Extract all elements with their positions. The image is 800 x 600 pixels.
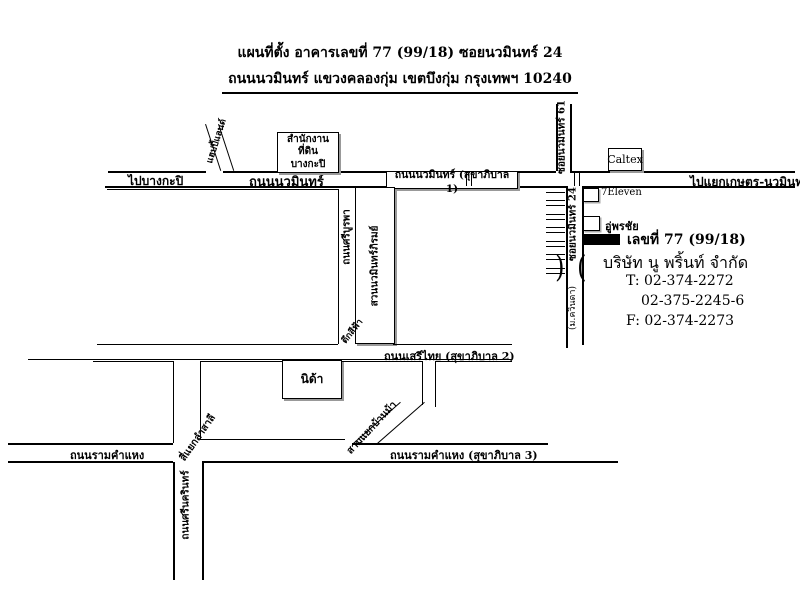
nawamin-sukhaphiban1-label-box: ถนนนวมินทร์ (สุขาภิบาล 1) <box>386 171 518 189</box>
sriburapha-road-label: ถนนศรีบูรพา <box>340 209 355 264</box>
srinakarin-road-label: ถนนศรีนครินทร์ <box>179 470 194 539</box>
nawamin-phirom-park-label: สวนนวมินทร์ภิรมย์ <box>368 225 383 306</box>
land-office-label-line1: สำนักงานที่ดิน <box>278 134 338 159</box>
soi-nawamin61-label: ซอยนวมินทร์ 61 <box>555 100 570 174</box>
srinakarin-road-line-right <box>202 462 204 580</box>
company-tel1-label: T: 02-374-2272 <box>626 273 734 289</box>
side-street-mark <box>546 241 565 247</box>
lower-middle-block-right-edge <box>422 361 423 405</box>
serithai-road-label: ถนนเสรีไทย (สุขาภิบาล 2) <box>384 347 515 365</box>
lamsali-junction-label: สี่แยกลำสาลี <box>176 412 219 465</box>
side-street-mark <box>546 227 565 233</box>
company-tel2-label: 02-375-2245-6 <box>641 293 744 309</box>
road-crossing-mark <box>579 172 580 186</box>
road-crossing-mark <box>574 172 575 186</box>
lower-left-block-right-edge <box>173 361 174 443</box>
ramkhamhaeng3-road-label: ถนนรามคำแหง (สุขาภิบาล 3) <box>390 446 538 464</box>
company-fax-label: F: 02-374-2273 <box>626 313 734 329</box>
location-map: แผนที่ตั้ง อาคารเลขที่ 77 (99/18) ซอยนวม… <box>0 0 800 600</box>
road-crossing-mark <box>471 172 472 186</box>
caltex-station-box: Caltex <box>608 148 642 171</box>
side-street-mark <box>546 187 565 193</box>
nida-box: นิด้า <box>282 360 342 399</box>
left-block-top-edge <box>107 189 338 190</box>
map-title: แผนที่ตั้ง อาคารเลขที่ 77 (99/18) ซอยนวม… <box>0 42 800 94</box>
bridge-mark-left: ) <box>555 253 564 283</box>
bridge-mark-right: ( <box>577 253 586 283</box>
land-office-label-line2: บางกะปิ <box>291 159 326 172</box>
soi-nawamin61-line-right <box>570 104 572 171</box>
destination-building-marker <box>583 234 620 245</box>
ramkhamhaeng3-road-top-line <box>352 443 548 445</box>
lower-left-block-top-edge <box>93 361 173 362</box>
seven-eleven-box <box>583 188 599 202</box>
road-crossing-mark <box>466 172 467 186</box>
village-kwinda-label: (ม.ควินดา) <box>565 286 579 330</box>
destination-address-label: เลขที่ 77 (99/18) <box>627 229 746 251</box>
seven-eleven-label: 7Eleven <box>601 187 642 198</box>
srinakarin-road-line-left <box>173 462 175 580</box>
bangkapi-land-office-box: สำนักงานที่ดิน บางกะปิ <box>277 132 339 173</box>
garage-pornchai-box <box>583 216 600 231</box>
ramkhamhaeng-road-top-line <box>8 443 173 445</box>
ramkhamhaeng-road-label: ถนนรามคำแหง <box>70 446 144 464</box>
lower-middle-block-bottom-edge <box>200 439 345 440</box>
serithai-road-top-line <box>393 344 512 345</box>
lower-right-block-left-edge <box>435 361 436 407</box>
map-title-line1: แผนที่ตั้ง อาคารเลขที่ 77 (99/18) ซอยนวม… <box>0 42 800 64</box>
direction-to-kaset-nawamin-label: ไปแยกเกษตร-นวมินทร์ <box>690 173 800 192</box>
side-street-mark <box>546 200 565 206</box>
side-street-mark <box>546 214 565 220</box>
left-block-bottom-edge <box>97 344 338 345</box>
lower-right-block-top-edge <box>435 361 512 362</box>
map-title-line2: ถนนนวมินทร์ แขวงคลองกุ่ม เขตบึงกุ่ม กรุง… <box>222 68 578 94</box>
